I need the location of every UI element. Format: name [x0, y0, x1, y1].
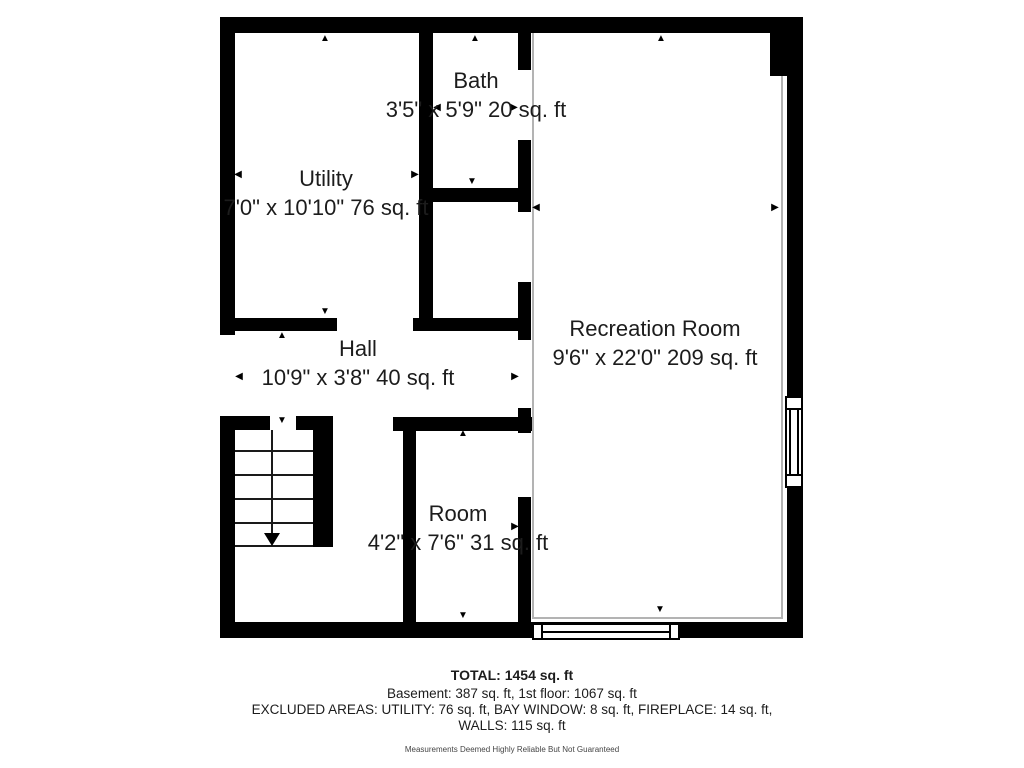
arrow-down-icon: ▼ — [458, 611, 468, 621]
wall-exterior-right — [787, 17, 803, 638]
wall-exterior-top — [220, 17, 803, 33]
room-label-recreation: Recreation Room 9'6" x 22'0" 209 sq. ft — [552, 314, 757, 372]
wall-bath-rec-low — [518, 282, 531, 340]
room-name: Bath — [386, 66, 567, 95]
room-name: Hall — [262, 334, 455, 363]
arrow-up-icon: ▲ — [656, 34, 666, 44]
room-label-bath: Bath 3'5" x 5'9" 20 sq. ft — [386, 66, 567, 124]
fireplace-block — [770, 17, 803, 76]
window-bottom — [532, 623, 680, 640]
arrow-up-icon: ▲ — [458, 429, 468, 439]
wall-exterior-bottom — [220, 622, 803, 638]
room-dimensions: 7'0" x 10'10" 76 sq. ft — [223, 193, 428, 222]
bay-window-right — [785, 396, 803, 488]
arrow-down-icon: ▼ — [320, 307, 330, 317]
staircase — [235, 430, 313, 547]
excluded-areas-2: WALLS: 115 sq. ft — [0, 718, 1024, 734]
arrow-right-icon: ▶ — [511, 372, 519, 382]
arrow-right-icon: ▶ — [771, 203, 779, 213]
floor-areas: Basement: 387 sq. ft, 1st floor: 1067 sq… — [0, 686, 1024, 702]
room-name: Utility — [223, 164, 428, 193]
wall-hall-top-right — [413, 318, 531, 331]
room-dimensions: 9'6" x 22'0" 209 sq. ft — [552, 343, 757, 372]
room-label-room: Room 4'2" x 7'6" 31 sq. ft — [368, 499, 549, 557]
excluded-areas: EXCLUDED AREAS: UTILITY: 76 sq. ft, BAY … — [0, 702, 1024, 718]
room-dimensions: 10'9" x 3'8" 40 sq. ft — [262, 363, 455, 392]
total-area: TOTAL: 1454 sq. ft — [0, 667, 1024, 684]
arrow-up-icon: ▲ — [470, 34, 480, 44]
room-label-hall: Hall 10'9" x 3'8" 40 sq. ft — [262, 334, 455, 392]
floor-plan: Utility 7'0" x 10'10" 76 sq. ft Bath 3'5… — [0, 0, 1024, 768]
arrow-down-icon: ▼ — [655, 605, 665, 615]
wall-bath-bottom — [432, 188, 531, 202]
arrow-left-icon: ◀ — [235, 372, 243, 382]
arrow-down-icon: ▼ — [277, 416, 287, 426]
arrow-down-icon: ▼ — [467, 177, 477, 187]
disclaimer: Measurements Deemed Highly Reliable But … — [0, 745, 1024, 754]
room-name: Recreation Room — [552, 314, 757, 343]
wall-bath-rec-top — [518, 17, 531, 70]
room-dimensions: 4'2" x 7'6" 31 sq. ft — [368, 528, 549, 557]
room-label-utility: Utility 7'0" x 10'10" 76 sq. ft — [223, 164, 428, 222]
area-summary: TOTAL: 1454 sq. ft Basement: 387 sq. ft,… — [0, 667, 1024, 754]
room-dimensions: 3'5" x 5'9" 20 sq. ft — [386, 95, 567, 124]
arrow-up-icon: ▲ — [320, 34, 330, 44]
wall-exterior-left-lower — [220, 417, 235, 638]
wall-room-right-upper — [518, 408, 531, 433]
room-name: Room — [368, 499, 549, 528]
arrow-left-icon: ◀ — [532, 203, 540, 213]
wall-stairs-right — [313, 416, 333, 547]
wall-hall-bottom-left — [220, 416, 270, 430]
stairs-direction-arrow-icon — [264, 533, 280, 546]
